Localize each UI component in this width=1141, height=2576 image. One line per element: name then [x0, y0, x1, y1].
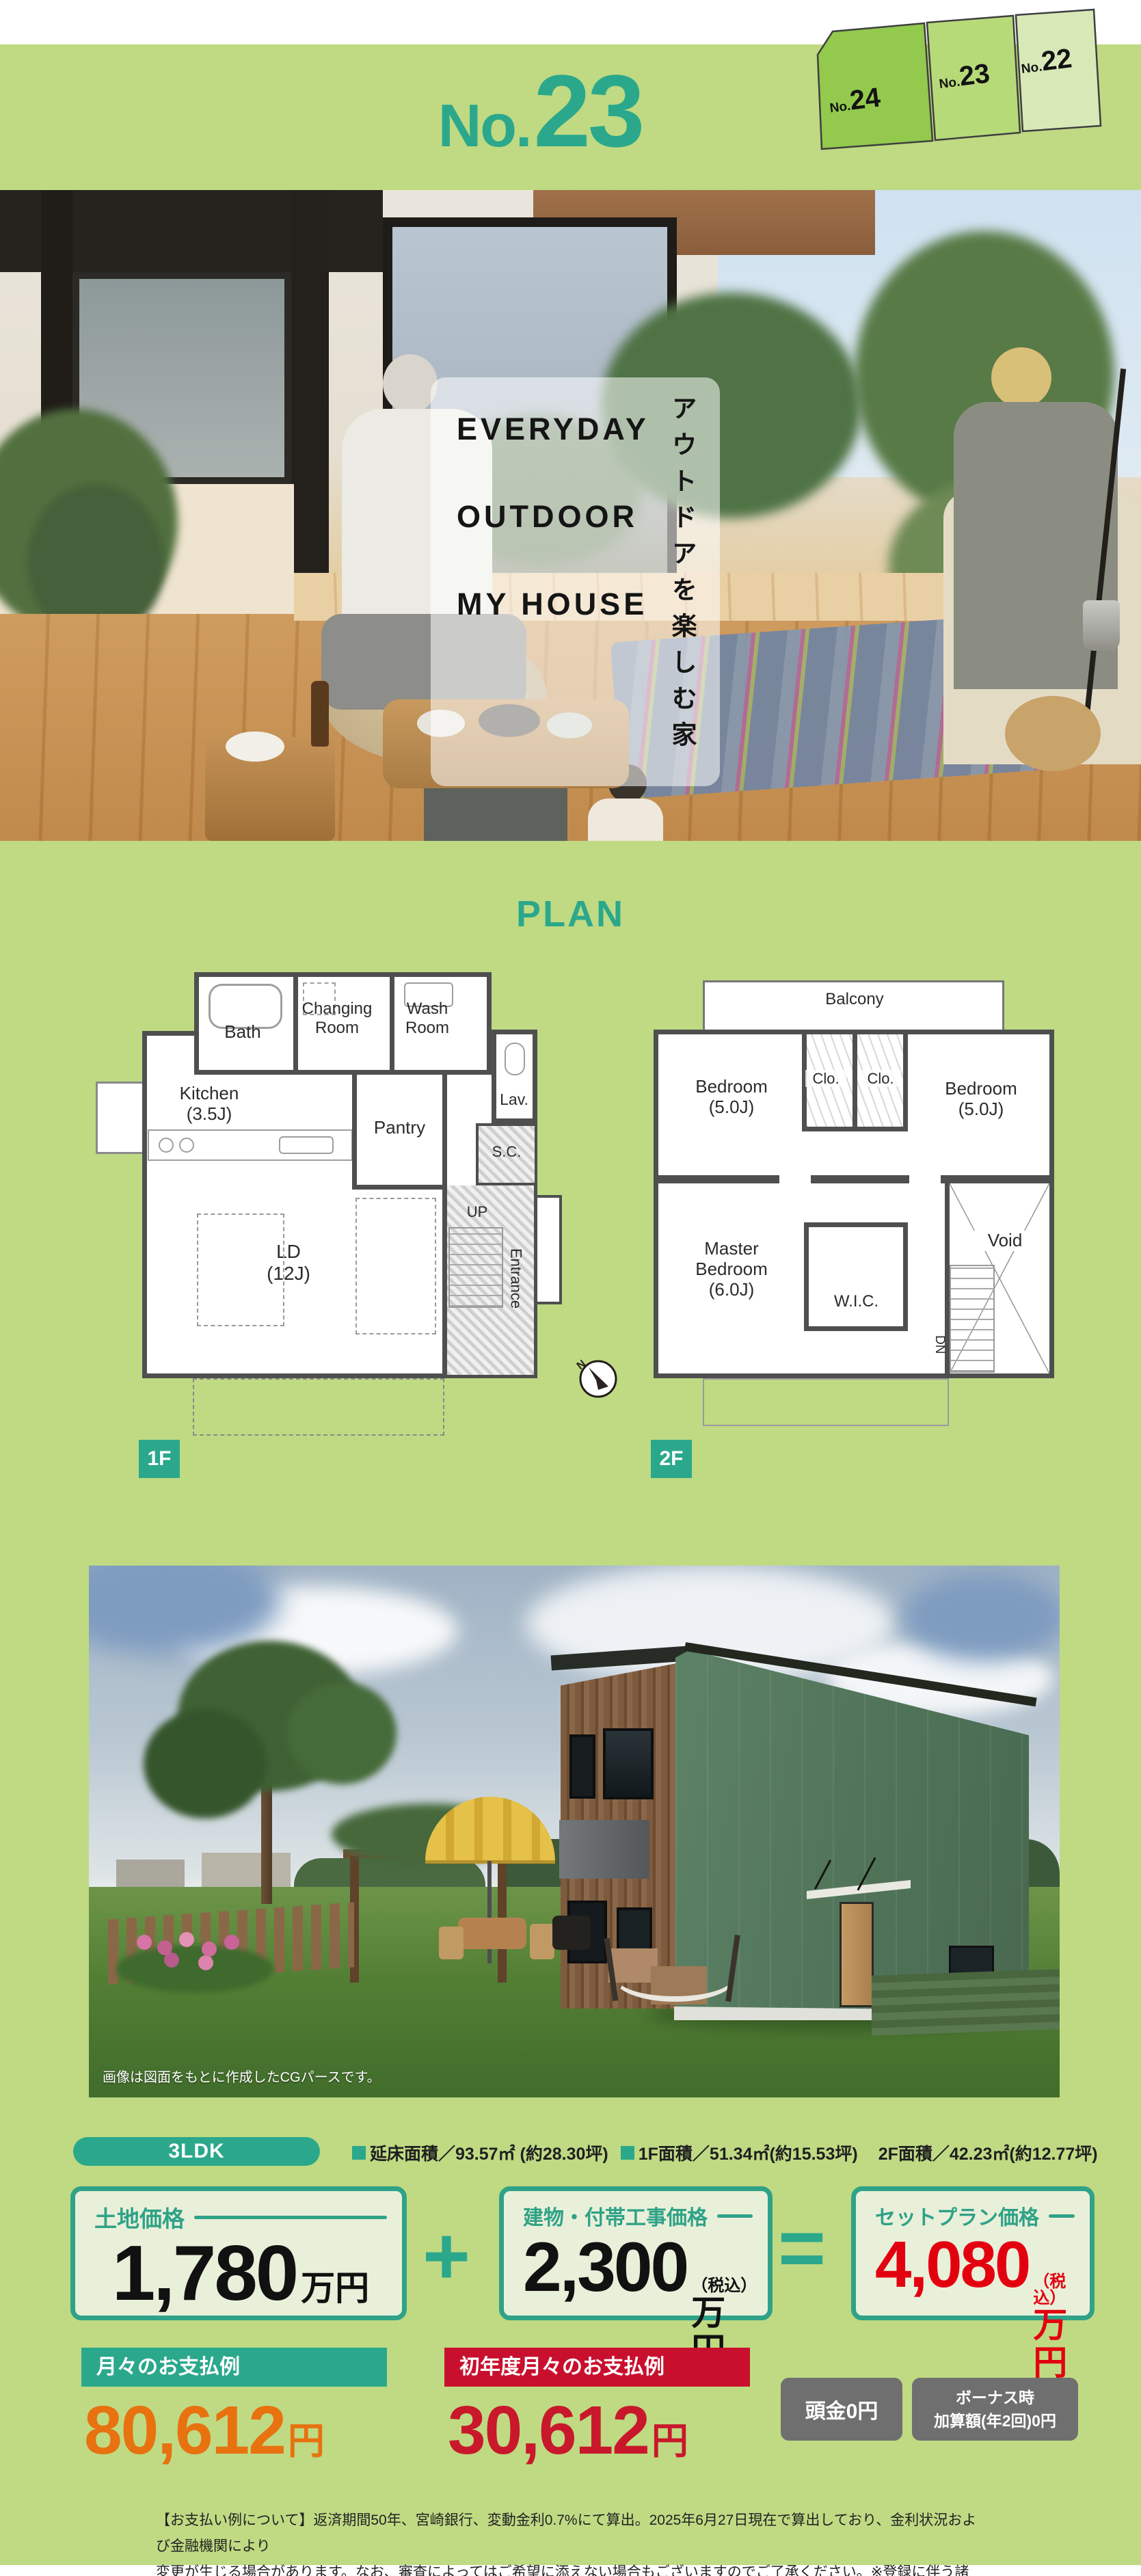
f1-bay-window: [96, 1082, 146, 1154]
garden-table: [458, 1918, 526, 1949]
set-price-unit: 万円: [1033, 2307, 1075, 2382]
stove-burner-2: [179, 1138, 194, 1153]
plot-number-value: 23: [533, 52, 642, 170]
lot-map: No.24 No.23 No.22: [814, 5, 1108, 155]
room-clo-right: Clo.: [860, 1070, 901, 1087]
area-bullet-icon: [352, 2146, 366, 2160]
front-door: [840, 1902, 874, 2007]
set-tax-note: （税込）: [1033, 2274, 1075, 2307]
window-upper-2: [603, 1728, 654, 1799]
room-balcony: Balcony: [807, 990, 902, 1009]
first-year-payment-bar: 初年度月々のお支払例: [444, 2348, 750, 2387]
kitchen-sink: [279, 1136, 334, 1154]
room-wash: Wash Room: [393, 999, 461, 1037]
garden-chair-1: [439, 1927, 464, 1959]
room-wic: W.I.C.: [820, 1292, 892, 1311]
f1-wall-ld-right: [442, 1075, 447, 1378]
room-entrance: Entrance: [507, 1210, 524, 1347]
f1-deck-outline: [193, 1378, 444, 1436]
plot-number-prefix: No.: [438, 91, 531, 161]
monthly-payment-value: 80,612円: [84, 2396, 325, 2465]
area-info-line: 延床面積／93.57㎡ (約28.30坪) 1F面積／51.34㎡(約15.53…: [352, 2141, 1125, 2165]
f2-lower-outline: [703, 1378, 949, 1426]
set-price-value: 4,080: [875, 2232, 1029, 2298]
sky-blue-patch-2: [902, 1572, 1060, 1661]
bottle: [311, 681, 329, 747]
f1-stairs-up: [448, 1227, 503, 1308]
land-price-label: 土地価格: [94, 2201, 185, 2233]
hammock: [614, 1954, 736, 2002]
plot-number-title: No.23: [383, 52, 697, 168]
land-price-value: 1,780: [112, 2235, 297, 2313]
f2-mid-door-gap-1: [779, 1175, 811, 1183]
area-2f: 2F面積／42.23㎡(約12.77坪): [878, 2141, 1098, 2165]
lantern-lamp: [1083, 600, 1120, 651]
title-rule: [1049, 2214, 1075, 2218]
basket: [1005, 696, 1101, 771]
room-lav: Lav.: [489, 1090, 539, 1108]
equals-operator: =: [778, 2207, 826, 2289]
render-caption: 画像は図面をもとに作成したCGパースです。: [103, 2066, 381, 2086]
hero-overlay-card: EVERYDAY OUTDOOR MY HOUSE アウトドアを楽しむ家: [431, 377, 720, 786]
frame-post-mid: [291, 190, 329, 628]
f2-wic: [804, 1222, 908, 1331]
room-pantry: Pantry: [357, 1118, 442, 1138]
hero-photo: EVERYDAY OUTDOOR MY HOUSE アウトドアを楽しむ家: [0, 190, 1141, 841]
flyer-page: No.23 No.24 No.23 No.22: [0, 0, 1141, 2576]
room-void: Void: [974, 1231, 1036, 1251]
f2-mid-door-gap-2: [909, 1175, 941, 1183]
room-master-bedroom: Master Bedroom (6.0J): [677, 1239, 786, 1300]
disclaimer: 【お支払い例について】返済期間50年、宮崎銀行、変動金利0.7%にて算出。202…: [156, 2508, 983, 2576]
person-blond-head: [991, 347, 1051, 407]
area-total: 延床面積／93.57㎡ (約28.30坪): [370, 2141, 608, 2165]
first-year-payment-value: 30,612円: [448, 2396, 688, 2465]
building-price-value: 2,300: [523, 2232, 687, 2302]
area-bullet-icon: [621, 2146, 634, 2160]
flower-bush-base: [116, 1945, 273, 1993]
f2-mid-wall: [658, 1175, 1049, 1183]
stove-burner-1: [159, 1138, 174, 1153]
person-man-head: [383, 354, 438, 413]
down-payment-box: 頭金0円: [781, 2378, 902, 2441]
monthly-payment-bar: 月々のお支払例: [81, 2348, 387, 2387]
title-rule: [194, 2216, 387, 2219]
room-bedroom-left: Bedroom (5.0J): [684, 1077, 779, 1118]
room-kitchen: Kitchen (3.5J): [161, 1084, 257, 1125]
f1-porch: [537, 1195, 562, 1304]
plan-section-title: PLAN: [0, 893, 1141, 935]
floor-badge-2f: 2F: [651, 1440, 692, 1478]
disclaimer-line-2: 変更が生じる場合があります。なお、審査によってはご希望に添えない場合もございます…: [156, 2560, 983, 2576]
f1-dining-furniture: [197, 1213, 284, 1326]
toilet: [505, 1043, 525, 1075]
set-price-card: セットプラン価格 4,080 （税込）万円: [851, 2186, 1095, 2320]
hero-title-line-3: MY HOUSE: [457, 587, 689, 622]
person-child-body: [588, 799, 663, 841]
f2-closet-divider: [853, 1034, 857, 1127]
building-price-card: 建物・付帯工事価格 2,300 （税込）万円: [499, 2186, 773, 2320]
kitchen-counter: [148, 1129, 353, 1161]
room-up: UP: [462, 1203, 492, 1220]
bowl: [226, 732, 284, 762]
land-price-unit: 万円: [301, 2270, 369, 2307]
floor-badge-1f: 1F: [139, 1440, 180, 1478]
f1-wall-pantry-h: [352, 1185, 447, 1190]
bonus-line-2: 加算額(年2回)0円: [934, 2409, 1056, 2433]
f1-lav: [492, 1030, 537, 1123]
room-bedroom-right: Bedroom (5.0J): [930, 1079, 1032, 1120]
garden-chair-2: [530, 1924, 554, 1959]
plus-operator: +: [422, 2215, 470, 2297]
hero-vertical-tagline: アウトドアを楽しむ家: [663, 395, 700, 778]
hero-title-line-2: OUTDOOR: [457, 499, 689, 535]
disclaimer-line-1: 【お支払い例について】返済期間50年、宮崎銀行、変動金利0.7%にて算出。202…: [156, 2508, 983, 2560]
tree-canopy-3: [287, 1682, 397, 1784]
layout-badge: 3LDK: [73, 2137, 320, 2166]
slat-fence-right: [872, 1969, 1060, 2036]
room-bath: Bath: [205, 1022, 280, 1043]
f2-stairs-down: [950, 1265, 995, 1373]
grill: [552, 1916, 591, 1950]
exterior-render: 画像は図面をもとに作成したCGパースです。: [89, 1566, 1060, 2097]
bonus-payment-box: ボーナス時 加算額(年2回)0円: [912, 2378, 1078, 2441]
room-clo-left: Clo.: [805, 1070, 846, 1087]
room-dn: DN: [932, 1323, 947, 1367]
f1-living-furniture: [355, 1198, 436, 1334]
room-changing: Changing Room: [293, 999, 381, 1037]
tree-canopy-2: [144, 1709, 267, 1819]
balcony-panel: [559, 1820, 649, 1879]
bonus-line-1: ボーナス時: [956, 2386, 1034, 2410]
set-price-label: セットプラン価格: [875, 2201, 1039, 2231]
land-price-card: 土地価格 1,780 万円: [70, 2186, 407, 2320]
compass-icon: N: [576, 1356, 619, 1398]
f1-wall-pantry-v: [352, 1075, 357, 1190]
hero-title-line-1: EVERYDAY: [457, 412, 689, 447]
area-1f: 1F面積／51.34㎡(約15.53坪): [639, 2141, 858, 2165]
flowers-pink: [137, 1935, 152, 1950]
building-price-label: 建物・付帯工事価格: [523, 2201, 708, 2231]
room-sc: S.C.: [479, 1143, 535, 1160]
window-upper-1: [569, 1734, 595, 1799]
building-tax-note: （税込）: [691, 2278, 753, 2294]
title-rule: [717, 2214, 753, 2218]
